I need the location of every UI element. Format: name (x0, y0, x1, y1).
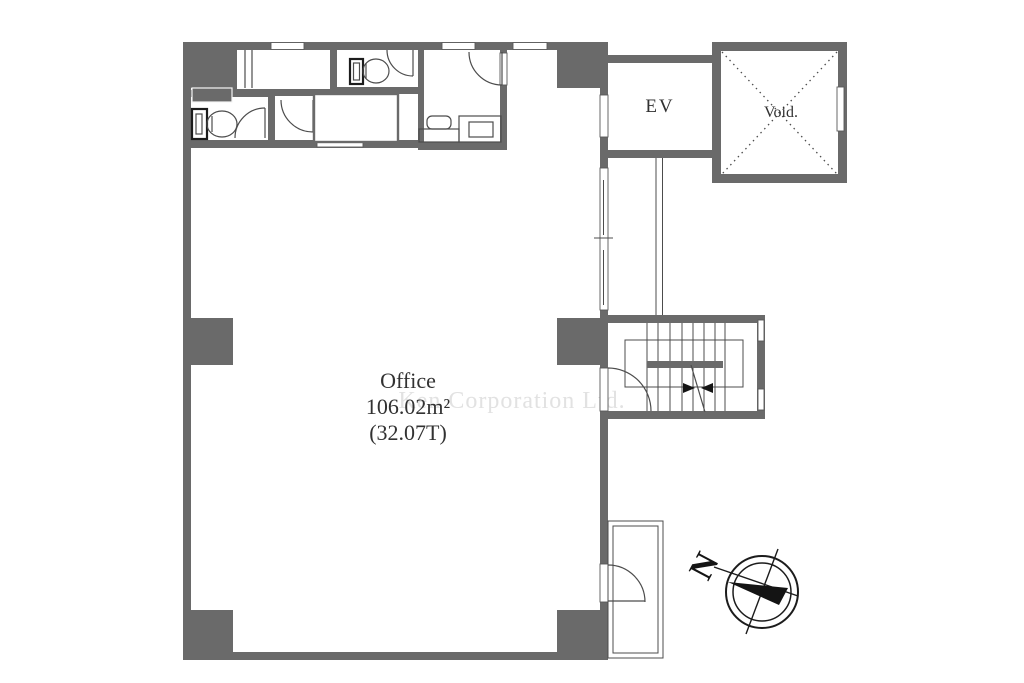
window-top-1 (271, 43, 304, 50)
balcony-outer (608, 521, 663, 658)
pillar-top-left (183, 42, 233, 88)
water-heater (427, 116, 451, 129)
floor-plan: Ken Corporation Ltd. (0, 0, 1024, 683)
elevator-label: EV (645, 96, 674, 117)
window-top-3 (513, 43, 547, 50)
wall-ev-top (608, 55, 713, 63)
balcony-door-swing-arc (608, 565, 645, 602)
ev-door-opening (600, 95, 608, 137)
pillar-top-right (557, 42, 608, 88)
toilet-bowl (363, 59, 389, 83)
stair-doorway (600, 368, 608, 411)
kitchen-counter (419, 129, 459, 142)
wall-roomA-right (330, 42, 337, 95)
sink-basin (469, 122, 493, 137)
kitchen-door-swing-arc (469, 52, 502, 85)
stair-window-top (758, 320, 764, 341)
wall-kitchen-right-top (500, 47, 507, 53)
void-room: Void. (717, 47, 845, 179)
stair-window-bottom (758, 389, 764, 410)
duct-shaft (192, 88, 232, 102)
vestibule-door-swing-arc (281, 100, 313, 132)
wc1-door-swing-arc (387, 50, 413, 76)
stair-arrow-right (701, 383, 713, 393)
toilet-icon (350, 59, 389, 84)
pillar-bottom-right (557, 610, 608, 660)
wc2-door-swing-arc (235, 108, 265, 138)
office-area-tsubo: (32.07T) (369, 420, 447, 445)
north-label: N (682, 546, 726, 585)
kitchen-doorway (500, 53, 507, 85)
pillar-mid-left (183, 318, 233, 365)
compass: N (682, 546, 798, 634)
walls (183, 42, 765, 660)
wall-bottom (183, 652, 608, 660)
balcony-inner (613, 526, 658, 653)
balcony (608, 521, 663, 658)
sink-unit (459, 116, 501, 142)
void-window (837, 87, 844, 131)
bath-unit (314, 94, 398, 142)
wall-kitchen-bottom (418, 142, 507, 150)
window-top-2 (442, 43, 475, 50)
pillar-bottom-left (183, 610, 233, 660)
stair-landing-bar (647, 361, 723, 368)
partition-double-line (245, 50, 252, 88)
toilet-icon (192, 109, 237, 139)
wall-ev-bottom (600, 150, 713, 158)
wall-stair-top (600, 315, 765, 323)
office-label: Office (380, 368, 436, 393)
balcony-doorway (600, 564, 608, 602)
toilet-tank-inner (196, 114, 202, 134)
toilet-tank-inner (354, 63, 360, 80)
office-area-m2: 106.02m² (366, 394, 451, 419)
stairwell (608, 323, 743, 412)
void-label: Void. (764, 104, 798, 121)
wall-stair-bottom (600, 411, 765, 419)
pillar-mid-right (557, 318, 608, 365)
hall-partition-lines (656, 158, 663, 315)
